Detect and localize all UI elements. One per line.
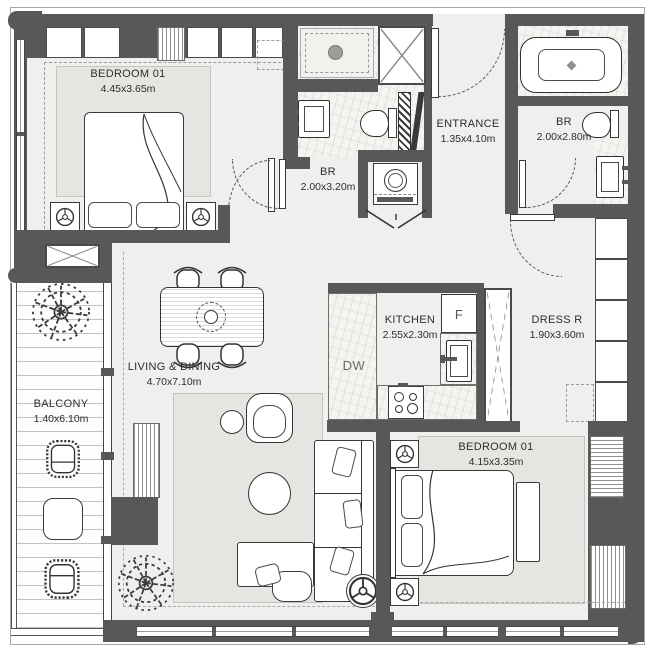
- armchair-seat: [253, 405, 286, 438]
- wardrobe-unit: [84, 27, 120, 58]
- dishwasher-label: DW: [337, 358, 371, 374]
- wardrobe-unit: [221, 27, 253, 58]
- living-label: LIVING & DINING 4.70x7.10m: [108, 361, 240, 389]
- wall-under-tub: [518, 96, 628, 106]
- floor-edge-dashed: [395, 602, 625, 603]
- entrance-door-leaf: [431, 28, 439, 98]
- wall-bathroom1-left: [505, 26, 518, 214]
- tv-cabinet: [111, 497, 158, 545]
- wall-living-bedroom2: [376, 420, 390, 618]
- wall-top: [27, 14, 433, 26]
- kitchen-label: KITCHEN 2.55x2.30m: [374, 314, 446, 342]
- pantry-x-icon: [486, 290, 510, 422]
- wall-top-right: [505, 14, 644, 26]
- bedroom1-label: BEDROOM 01 4.45x3.65m: [63, 68, 193, 96]
- wardrobe-unit: [187, 27, 219, 58]
- wall-bathroom2-left: [283, 14, 298, 160]
- balcony-rail-left: [11, 283, 17, 632]
- room-name: ENTRANCE: [432, 118, 504, 131]
- room-dims: 2.55x2.30m: [374, 329, 446, 342]
- faucet-icon: [292, 110, 299, 114]
- bathroom1-label: BR 2.00x2.80m: [524, 116, 604, 144]
- toilet-tank: [610, 110, 619, 138]
- living-plant: [114, 550, 178, 616]
- floor-lamp-icon: [346, 574, 380, 608]
- floor-plan: BALCONY 1.40x6.10m BEDROOM 01 4.45x3.65m: [0, 0, 654, 652]
- window-tick: [443, 627, 447, 636]
- closet-unit: [595, 218, 628, 259]
- tub-faucet-icon: [566, 30, 579, 36]
- burner: [395, 405, 403, 413]
- table-centerpiece-inner: [204, 310, 218, 324]
- room-name: BALCONY: [22, 398, 100, 411]
- bed-bench: [516, 482, 540, 562]
- room-dims: 1.35x4.10m: [432, 133, 504, 146]
- room-name: KITCHEN: [374, 314, 446, 327]
- faucet-icon: [622, 166, 629, 170]
- faucet-icon: [622, 180, 629, 184]
- bedroom2-label: BEDROOM 01 4.15x3.35m: [431, 441, 561, 469]
- room-name: BEDROOM 01: [431, 441, 561, 454]
- wall-laundry-top: [358, 150, 432, 162]
- room-name: BR: [292, 166, 364, 179]
- pillow: [88, 202, 132, 228]
- window: [506, 626, 618, 637]
- kitchen-counter-left: [328, 293, 377, 420]
- closet-unit: [595, 300, 628, 341]
- balcony-chair: [40, 556, 84, 602]
- wall-balcony-band: [8, 268, 112, 283]
- room-dims: 2.00x3.20m: [292, 181, 364, 194]
- window-tick: [17, 132, 24, 136]
- vent-unit: [590, 545, 626, 609]
- window-tick: [212, 627, 216, 636]
- fridge-label: F: [441, 305, 477, 324]
- toilet-bowl: [360, 110, 389, 137]
- balcony-plant: [28, 278, 94, 346]
- window: [137, 626, 369, 637]
- room-dims: 1.90x3.60m: [520, 329, 594, 342]
- balcony-chair: [42, 436, 84, 482]
- closet-unit: [595, 341, 628, 382]
- table-lamp-icon: [394, 443, 416, 465]
- faucet-icon: [443, 357, 457, 361]
- balcony-rail-bottom: [11, 628, 103, 636]
- bathroom2-label: BR 2.00x3.20m: [292, 166, 364, 194]
- sofa-cushion-line: [315, 493, 361, 494]
- shower-drain: [328, 45, 343, 60]
- bed-duvet-fold: [397, 470, 514, 576]
- window-tick: [560, 627, 564, 636]
- wall-under-shower: [298, 79, 378, 92]
- stove-control-tick: [398, 383, 408, 387]
- closet-dashed-box: [566, 384, 594, 422]
- room-dims: 4.45x3.65m: [63, 83, 193, 96]
- wardrobe-unit: [46, 27, 82, 58]
- room-name: BR: [524, 116, 604, 129]
- pillow: [342, 499, 363, 529]
- wall-bedroom2-top: [484, 421, 520, 432]
- room-name: BEDROOM 01: [63, 68, 193, 81]
- table-lamp-icon: [394, 581, 416, 603]
- washing-machine: [373, 163, 418, 205]
- sink-basin: [304, 106, 324, 132]
- door-leaf: [279, 159, 286, 209]
- shower-screen: [398, 92, 411, 156]
- pillow: [136, 202, 180, 228]
- table-lamp-icon: [54, 206, 76, 228]
- table-lamp-icon: [190, 206, 212, 228]
- balcony-label: BALCONY 1.40x6.10m: [22, 398, 100, 426]
- wall-kitchen-bottom: [327, 420, 484, 432]
- side-table: [220, 410, 244, 434]
- wall-pantry-strip: [477, 283, 484, 432]
- wardrobe-hanging-rail: [157, 27, 185, 61]
- glass-joint-tick: [101, 452, 114, 460]
- room-dims: 2.00x2.80m: [524, 131, 604, 144]
- bifold-doors: [356, 208, 436, 232]
- vent-unit: [590, 436, 624, 498]
- door-leaf: [510, 214, 555, 221]
- burner: [394, 392, 404, 402]
- wall-bathroom1-bottom: [553, 204, 628, 218]
- toilet-tank: [388, 108, 397, 138]
- coffee-table: [248, 472, 291, 515]
- balcony-table: [43, 498, 83, 540]
- closet-unit: [595, 259, 628, 300]
- shaft-x-icon: [47, 246, 98, 266]
- washer-vent: [377, 197, 413, 202]
- tv-panel: [133, 423, 160, 498]
- burner: [409, 393, 417, 401]
- stove: [388, 386, 424, 419]
- wall-right: [628, 14, 644, 644]
- room-dims: 4.70x7.10m: [108, 376, 240, 389]
- room-dims: 1.40x6.10m: [22, 413, 100, 426]
- sink-basin: [450, 345, 468, 377]
- door-leaf: [519, 160, 526, 208]
- shaft-x-icon: [380, 28, 424, 83]
- window: [16, 40, 25, 230]
- bed-headboard: [390, 468, 396, 578]
- window-mullion: [137, 631, 369, 632]
- dressroom-label: DRESS R 1.90x3.60m: [520, 314, 594, 342]
- sink-basin: [601, 162, 619, 192]
- faucet-icon: [292, 122, 299, 126]
- room-dims: 4.15x3.35m: [431, 456, 561, 469]
- wall-kitchen-top: [328, 283, 484, 293]
- wall-bedroom1-bottom: [27, 230, 218, 243]
- closet-unit: [595, 382, 628, 423]
- washer-drum-inner: [388, 173, 403, 188]
- entrance-label: ENTRANCE 1.35x4.10m: [432, 118, 504, 146]
- window-tick: [292, 627, 296, 636]
- faucet-icon: [440, 355, 445, 363]
- washer-dashed-line: [374, 194, 416, 195]
- room-name: LIVING & DINING: [108, 361, 240, 374]
- wall-bedroom2-top-right: [588, 421, 628, 432]
- window: [392, 626, 498, 637]
- burner: [407, 403, 418, 414]
- room-name: DRESS R: [520, 314, 594, 327]
